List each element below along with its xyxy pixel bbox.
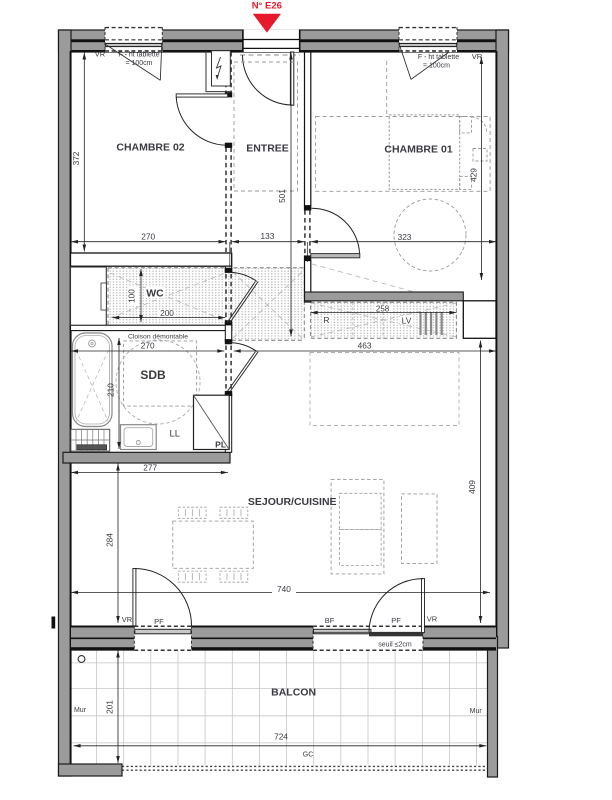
svg-text:Mur: Mur bbox=[470, 708, 483, 715]
svg-text:= 100cm: = 100cm bbox=[125, 60, 152, 67]
svg-text:F - ht tablette: F - ht tablette bbox=[418, 54, 459, 61]
svg-text:100: 100 bbox=[127, 289, 137, 303]
svg-text:Mur: Mur bbox=[74, 707, 87, 714]
svg-text:PF: PF bbox=[391, 616, 401, 625]
svg-text:372: 372 bbox=[71, 151, 81, 165]
svg-text:270: 270 bbox=[141, 232, 155, 242]
svg-text:WC: WC bbox=[146, 287, 164, 299]
svg-text:LV: LV bbox=[402, 315, 412, 325]
svg-text:LL: LL bbox=[170, 429, 181, 440]
svg-text:CHAMBRE 02: CHAMBRE 02 bbox=[116, 141, 184, 153]
svg-text:VR: VR bbox=[427, 615, 438, 624]
svg-text:GC: GC bbox=[303, 752, 314, 759]
svg-text:210: 210 bbox=[105, 383, 115, 397]
svg-text:740: 740 bbox=[277, 584, 291, 594]
svg-text:270: 270 bbox=[141, 340, 155, 350]
svg-text:SEJOUR/CUISINE: SEJOUR/CUISINE bbox=[248, 496, 337, 508]
svg-text:F - ht tablette: F - ht tablette bbox=[118, 52, 159, 59]
svg-text:PL: PL bbox=[215, 440, 226, 450]
svg-text:PF: PF bbox=[154, 617, 164, 626]
svg-text:429: 429 bbox=[468, 168, 478, 182]
svg-text:201: 201 bbox=[104, 700, 114, 714]
svg-text:463: 463 bbox=[358, 340, 372, 350]
svg-text:Cloison démontable: Cloison démontable bbox=[128, 334, 188, 341]
svg-text:200: 200 bbox=[160, 308, 174, 318]
svg-text:133: 133 bbox=[260, 231, 274, 241]
svg-text:BF: BF bbox=[325, 616, 335, 625]
svg-text:724: 724 bbox=[274, 732, 288, 742]
svg-text:277: 277 bbox=[143, 463, 157, 473]
svg-text:284: 284 bbox=[104, 533, 114, 547]
svg-text:501: 501 bbox=[277, 189, 287, 203]
svg-text:seuil ≤2cm: seuil ≤2cm bbox=[378, 641, 412, 648]
svg-text:= 100cm: = 100cm bbox=[423, 63, 450, 70]
svg-text:R: R bbox=[323, 315, 329, 325]
svg-text:409: 409 bbox=[467, 480, 477, 494]
svg-text:VR: VR bbox=[122, 615, 133, 624]
svg-text:VR: VR bbox=[472, 52, 483, 61]
svg-text:CHAMBRE 01: CHAMBRE 01 bbox=[384, 143, 452, 155]
svg-text:SDB: SDB bbox=[140, 368, 166, 382]
svg-text:VR: VR bbox=[95, 50, 106, 59]
svg-text:BALCON: BALCON bbox=[271, 686, 316, 698]
svg-text:ENTREE: ENTREE bbox=[246, 142, 289, 154]
svg-text:N° E26: N° E26 bbox=[252, 1, 282, 12]
svg-text:258: 258 bbox=[376, 304, 390, 313]
svg-text:323: 323 bbox=[398, 232, 412, 242]
